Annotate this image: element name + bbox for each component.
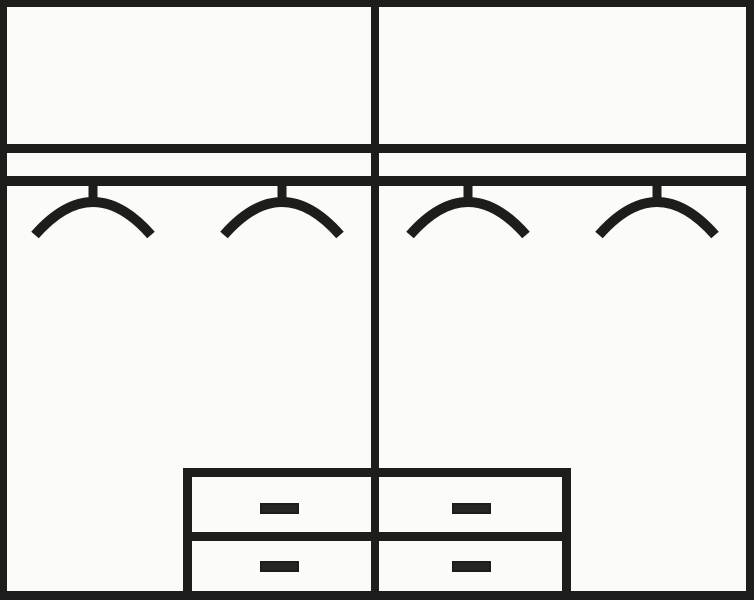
drawer-unit-top-edge (183, 468, 571, 477)
drawer-handle-bottom-right (452, 561, 491, 572)
drawer-handle-bottom-left (260, 561, 299, 572)
shelf-line (7, 144, 746, 153)
hanger-hook (410, 202, 526, 235)
hanger-icon-2 (217, 184, 347, 248)
outer-frame-top (0, 0, 754, 7)
hanger-hook (35, 202, 151, 235)
drawer-handle-top-right (452, 503, 491, 514)
outer-frame-left (0, 0, 7, 600)
wardrobe-schematic-image (0, 0, 754, 600)
outer-frame-right (746, 0, 754, 600)
hanger-icon-4 (592, 184, 722, 248)
hanger-icon-3 (403, 184, 533, 248)
drawer-divider-line (183, 532, 571, 541)
drawer-handle-top-left (260, 503, 299, 514)
drawer-unit-left-edge (183, 468, 192, 591)
center-divider (371, 7, 379, 591)
top-compartment-left (7, 7, 371, 144)
drawer-unit-right-edge (562, 468, 571, 591)
outer-frame-bottom (0, 591, 754, 600)
top-compartment-right (379, 7, 746, 144)
hanger-hook (599, 202, 715, 235)
hanger-icon-1 (28, 184, 158, 248)
hanger-hook (224, 202, 340, 235)
